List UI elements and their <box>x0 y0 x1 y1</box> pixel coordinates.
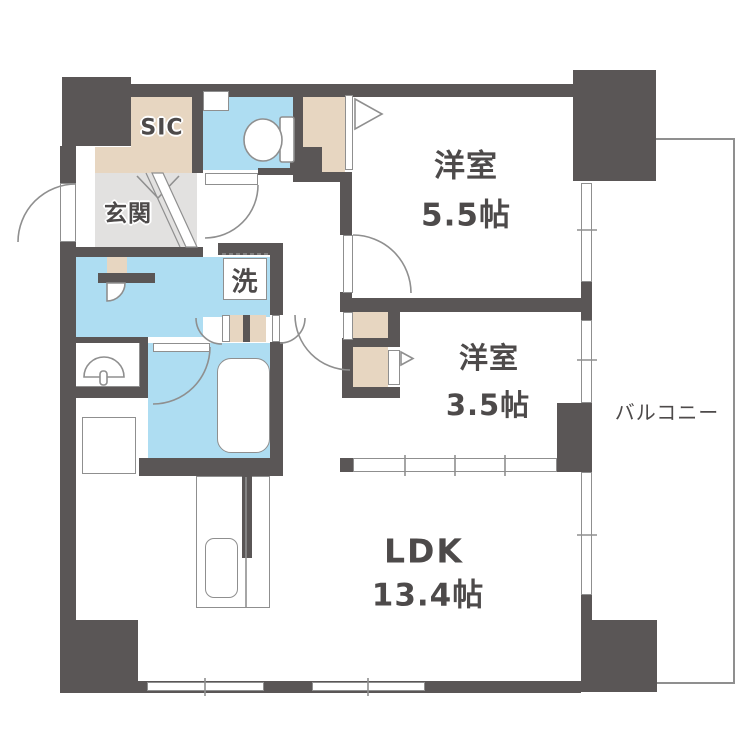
toilet-door-leaf <box>205 173 258 185</box>
label-bedroom1-size: 5.5帖 <box>421 190 511 235</box>
label-balcony: バルコニー <box>615 397 720 426</box>
wall-doorrow-mid <box>243 315 250 342</box>
wall-closet-east <box>388 298 400 340</box>
washroom-door-leaf <box>222 315 230 342</box>
wall-bath-east <box>270 342 283 463</box>
window-ldk-right <box>581 472 592 595</box>
wall-right-low <box>581 595 592 620</box>
bedroom1-door-leaf <box>343 235 353 293</box>
wall-closet-notch <box>290 147 322 172</box>
wall-kitchen-stub <box>242 476 252 558</box>
bathtub <box>217 358 270 453</box>
wall-left-upper <box>60 146 76 183</box>
wall-stub-a <box>230 315 243 342</box>
wall-entrance-south <box>76 247 203 257</box>
closet-fold-pointer-1 <box>355 99 382 129</box>
closet-door-band-2 <box>388 350 400 385</box>
closet-bedroom1 <box>303 92 345 147</box>
hall-door-leaf <box>272 315 280 342</box>
wall-corridor-north <box>293 172 352 182</box>
window-bedroom2 <box>581 320 592 403</box>
wall-stub-b <box>250 315 266 342</box>
label-laundry: 洗 <box>231 262 258 299</box>
toilet-shelf <box>203 91 229 111</box>
wall-vanity-south <box>60 387 148 398</box>
pillar-bottom-right <box>581 620 657 692</box>
wall-vanity-top <box>70 337 148 343</box>
window-ldk-1 <box>147 682 264 691</box>
bedroom1-door-arc <box>353 235 411 293</box>
refrigerator-space <box>82 417 136 474</box>
wall-closet-south <box>342 387 400 398</box>
closet-hall-upper <box>353 312 388 340</box>
label-bedroom1-name: 洋室 <box>434 141 498 186</box>
pillar-top-left <box>62 77 131 146</box>
closet-bedroom2 <box>353 347 388 387</box>
wall-bath-south <box>139 458 283 476</box>
floor-plan: SIC 玄関 洗 洋室 5.5帖 洋室 3.5帖 LDK 13.4帖 バルコニー <box>0 0 750 750</box>
label-entrance: 玄関 <box>104 194 152 228</box>
closet-hall-door-leaf <box>343 312 353 340</box>
closet-bedroom1-2 <box>322 147 345 172</box>
window-ldk-2 <box>312 682 425 691</box>
label-ldk-name: LDK <box>384 532 464 571</box>
sic-floor-2 <box>95 147 192 173</box>
pillar-bottom-left <box>60 620 138 693</box>
hall-door-arc <box>280 318 305 343</box>
kitchen-sink <box>205 538 238 598</box>
wall-left-lower <box>60 242 76 620</box>
wall-bedroom1-west <box>340 182 352 235</box>
pillar-top-right <box>573 70 656 181</box>
wall-toilet-west <box>192 85 203 173</box>
entry-door-opening <box>60 183 76 242</box>
bath-door-leaf <box>153 343 210 352</box>
sliding-partition-track <box>353 458 557 472</box>
label-bedroom2-size: 3.5帖 <box>446 382 530 424</box>
wall-closet-west <box>342 347 353 387</box>
wall-bedroom-divider <box>340 298 581 312</box>
label-bedroom2-name: 洋室 <box>459 335 519 377</box>
washroom-floor-2 <box>70 317 203 337</box>
wall-right-mid <box>581 282 592 320</box>
wall-washroom-entry <box>98 273 155 283</box>
label-sic: SIC <box>140 116 183 141</box>
wall-slider-stub <box>340 458 353 472</box>
label-ldk-size: 13.4帖 <box>372 570 485 615</box>
closet-door-band-1 <box>345 95 353 170</box>
duct-shaft <box>557 403 592 472</box>
window-bedroom1 <box>581 183 592 282</box>
vanity-counter <box>70 340 140 387</box>
toilet-door-arc <box>205 185 258 238</box>
closet-fold-pointer-2 <box>401 352 413 365</box>
wall-washroom-east <box>270 247 283 315</box>
